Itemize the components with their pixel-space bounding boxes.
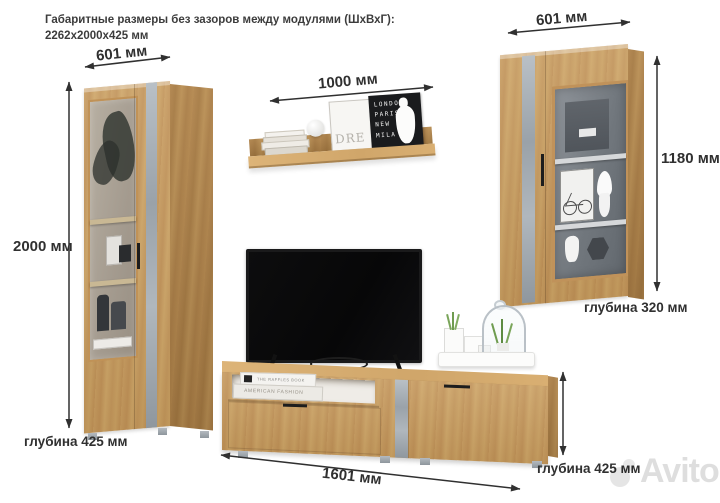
dim-left-cabinet-depth: глубина 425 мм [24, 434, 128, 449]
product-image: Габаритные размеры без зазоров между мод… [0, 0, 720, 503]
avito-logo-icon [610, 455, 640, 489]
dim-left-cabinet-height: 2000 мм [13, 238, 73, 255]
watermark: Avito [610, 452, 719, 491]
dim-right-cabinet-height: 1180 мм [661, 150, 720, 167]
watermark-text: Avito [640, 452, 719, 491]
dim-right-cabinet-depth: глубина 320 мм [584, 300, 688, 315]
